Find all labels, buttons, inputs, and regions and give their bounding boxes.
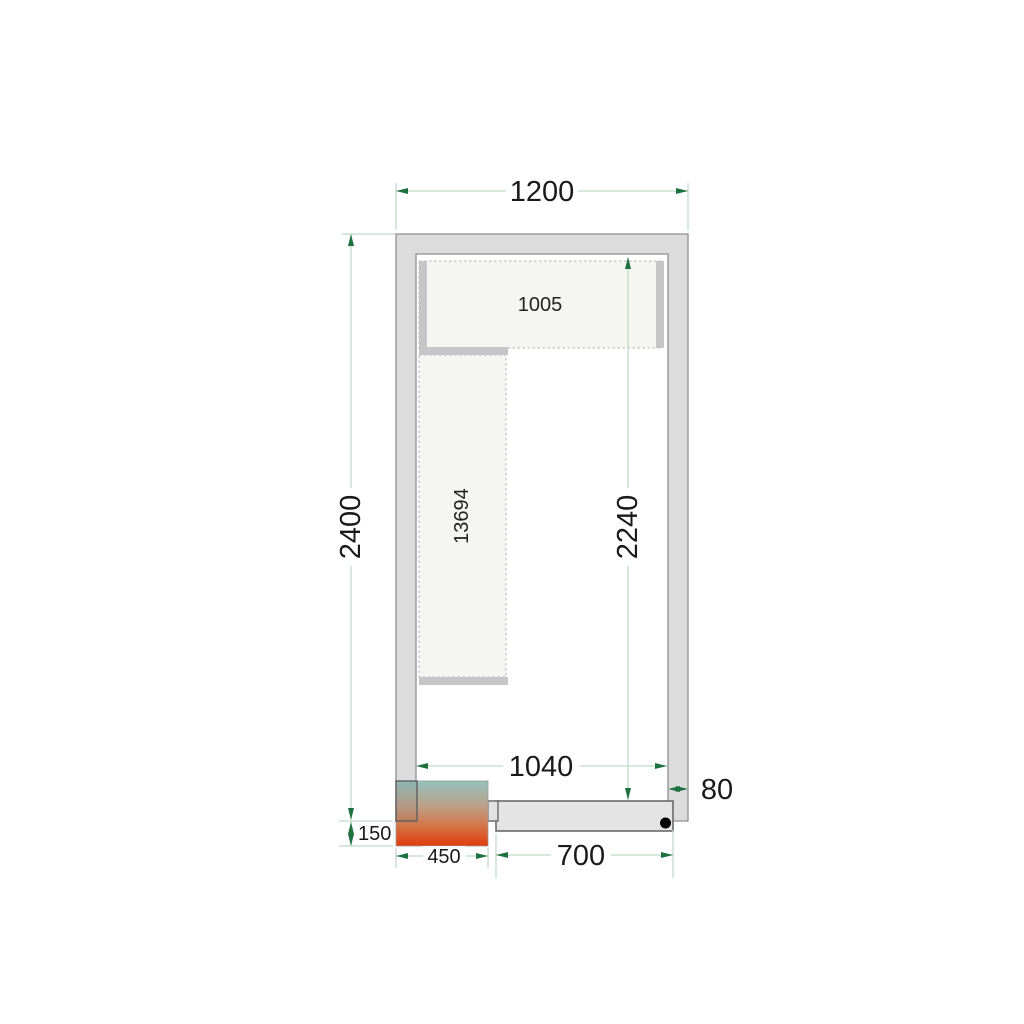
wall-corner-overlay-outline	[396, 781, 417, 821]
technical-drawing-page: 1005 13694	[0, 0, 1024, 1024]
arrow-unit-width-right	[476, 853, 488, 859]
top-shelf-label: 1005	[518, 294, 563, 316]
arrow-door-width-right	[661, 852, 673, 858]
wall-thickness-dimension-label: 80	[701, 774, 733, 806]
arrow-unit-protrusion-top	[348, 822, 354, 834]
unit-protrusion-dimension-label: 150	[358, 823, 391, 845]
unit-width-dimension-label: 450	[427, 846, 460, 868]
arrow-interior-height-bottom	[625, 788, 631, 800]
arrow-outer-height-bottom	[348, 808, 354, 820]
outer-width-dimension-label: 1200	[510, 176, 575, 208]
left-shelf-label: 13694	[451, 488, 473, 544]
door-leaf	[496, 801, 673, 831]
arrow-unit-width-left	[396, 853, 408, 859]
door-hinge-dot	[660, 818, 671, 829]
door-width-dimension-label: 700	[557, 840, 605, 872]
arrow-interior-width-left	[416, 763, 428, 769]
arrow-outer-width-right	[676, 188, 688, 194]
door-frame-stub	[488, 801, 498, 821]
shelves	[419, 261, 661, 677]
top-shelf-right-bar	[656, 261, 664, 348]
cold-room-floor-plan: 1005 13694	[0, 0, 1024, 1024]
arrow-door-width-left	[496, 852, 508, 858]
left-shelf-top-bar	[419, 347, 508, 355]
top-shelf-left-bar	[419, 261, 427, 348]
interior-height-dimension-label: 2240	[612, 495, 644, 560]
left-shelf-bottom-bar	[419, 677, 508, 685]
arrow-outer-width-left	[396, 188, 408, 194]
outer-height-dimension-label: 2400	[335, 495, 367, 560]
arrow-outer-height-top	[348, 234, 354, 246]
arrow-unit-protrusion-bottom	[348, 834, 354, 846]
arrow-interior-width-right	[655, 763, 667, 769]
interior-width-dimension-label: 1040	[509, 751, 574, 783]
